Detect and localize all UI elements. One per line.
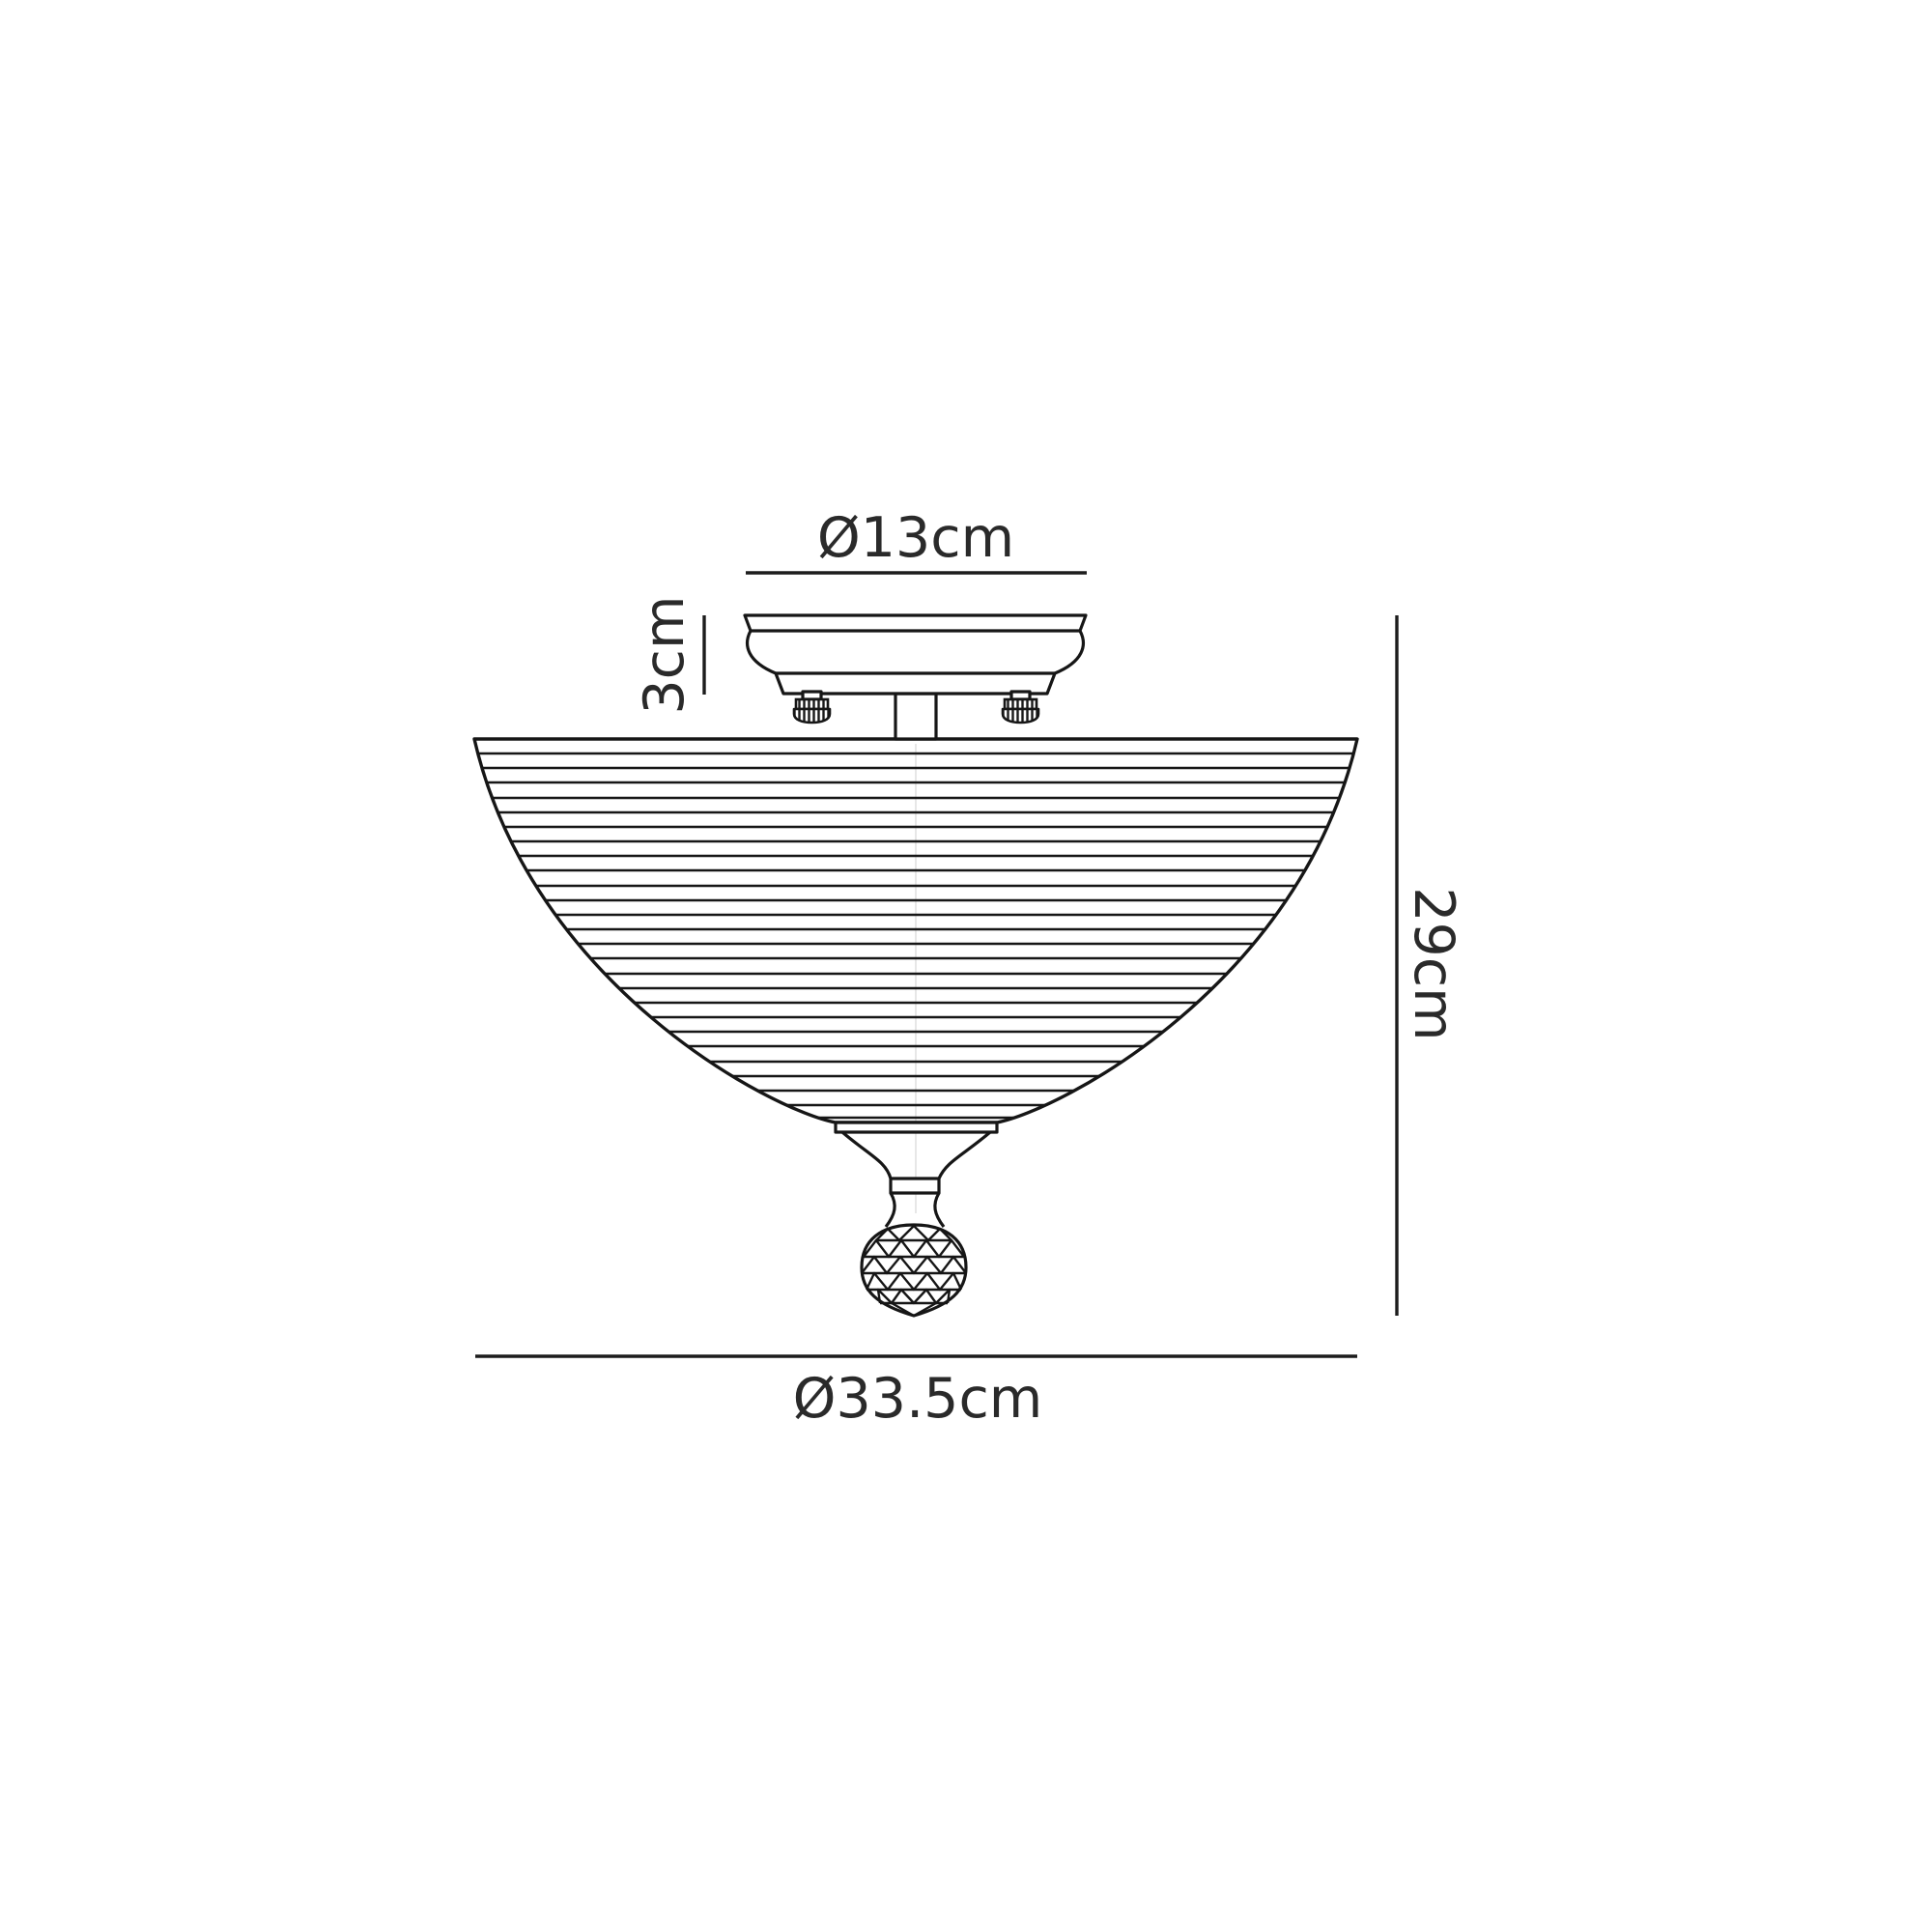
ceiling-canopy [745,615,1086,694]
stem [895,694,936,739]
dimension-shade-diameter: Ø33.5cm [475,1356,1357,1431]
dimension-label-shade-diameter: Ø33.5cm [793,1367,1043,1431]
finial-waist-left [886,1193,895,1227]
glass-shade [444,739,1391,1213]
mounting-screw-left [794,692,830,723]
product-dimension-diagram: Ø13cm 3cm 29cm Ø33.5cm [0,0,1932,1932]
canopy-outline [745,615,1086,694]
dimension-label-canopy-diameter: Ø13cm [817,506,1014,570]
ceiling-light-line-drawing: Ø13cm 3cm 29cm Ø33.5cm [0,0,1932,1932]
finial-collar [836,1122,997,1132]
dimension-label-canopy-height: 3cm [633,595,696,714]
mounting-screw-right [1003,692,1038,723]
finial-neck-right [939,1132,990,1179]
dimension-overall-height: 29cm [1397,615,1465,1316]
crystal-ball-finial [862,1225,966,1316]
finial-waist-right [935,1193,944,1227]
finial-band [891,1179,939,1193]
finial-neck-left [842,1132,891,1179]
dimension-label-overall-height: 29cm [1402,887,1465,1040]
dimension-canopy-height: 3cm [633,595,704,714]
dimension-canopy-diameter: Ø13cm [746,506,1087,573]
